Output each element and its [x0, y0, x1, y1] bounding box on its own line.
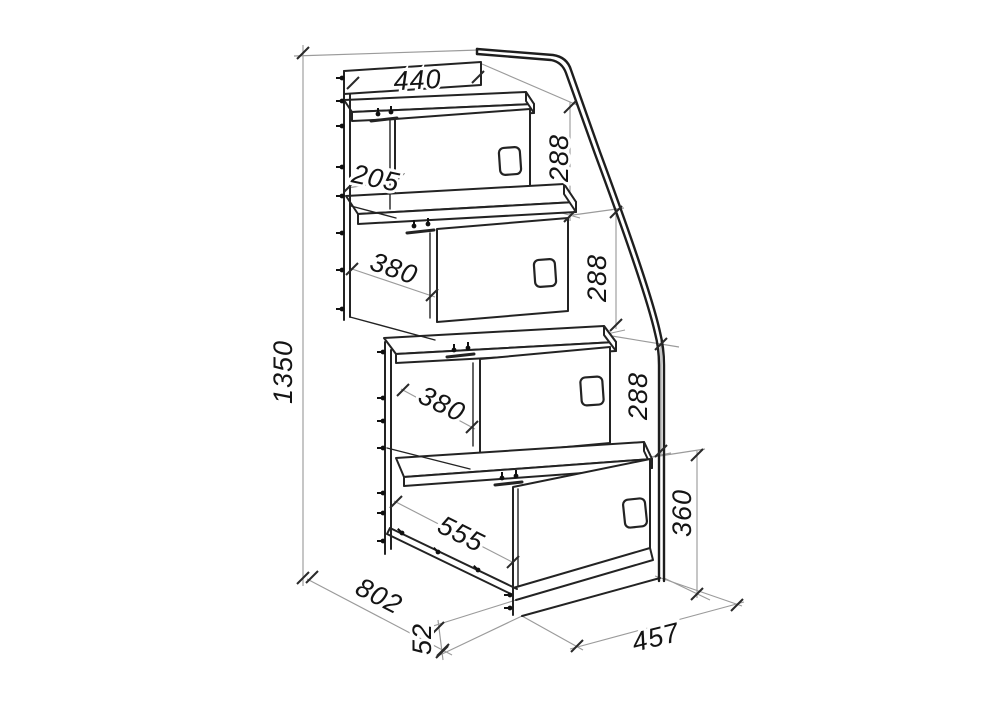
- technical-drawing: 440 205 288 380 288 380 288 555 360 1350…: [0, 0, 1000, 707]
- extension-line: [440, 616, 522, 655]
- drawing-canvas: 440 205 288 380 288 380 288 555 360 1350…: [0, 0, 1000, 707]
- dim-total-depth: 802: [351, 572, 407, 621]
- handle-cutout-step3: [580, 376, 604, 405]
- dim-tick: [466, 421, 478, 433]
- dim-base-height: 52: [407, 623, 437, 655]
- dim-step3-depth: 380: [414, 380, 470, 428]
- dim-step2-height: 288: [582, 254, 612, 303]
- staircase-chest: [344, 62, 660, 616]
- construction-top-edge: [294, 50, 479, 56]
- dim-top-width: 440: [393, 64, 443, 96]
- dim-step1-height: 288: [544, 134, 574, 183]
- dim-bottom-width: 457: [629, 617, 683, 658]
- handle-cutout-step1: [499, 147, 522, 175]
- handle-cutout-step4: [623, 498, 648, 528]
- dim-tick: [346, 263, 358, 275]
- dim-bottom-depth: 555: [433, 510, 489, 559]
- dim-step2-depth: 380: [366, 246, 421, 290]
- extension-line: [522, 616, 583, 650]
- dim-tick: [397, 384, 409, 396]
- dim-total-height: 1350: [268, 340, 298, 404]
- dim-bottom-height: 360: [667, 489, 697, 537]
- dim-step3-height: 288: [623, 372, 653, 421]
- handle-cutout-step2: [534, 259, 557, 287]
